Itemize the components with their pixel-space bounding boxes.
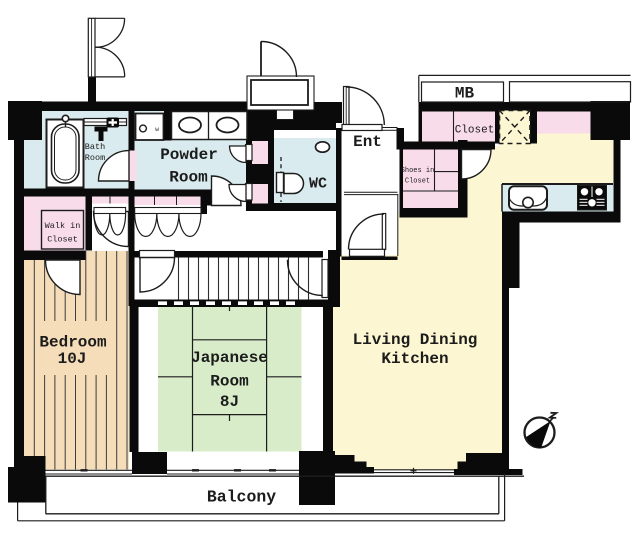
svg-text:Bedroom: Bedroom: [39, 334, 107, 352]
svg-text:Walk in: Walk in: [45, 221, 81, 231]
svg-text:Shoes in: Shoes in: [401, 167, 435, 175]
svg-text:WC: WC: [309, 176, 327, 193]
svg-text:Living Dining: Living Dining: [353, 331, 478, 349]
svg-text:Japanese: Japanese: [191, 349, 268, 367]
svg-text:MB: MB: [455, 85, 475, 103]
svg-text:Closet: Closet: [455, 125, 495, 137]
svg-text:Kitchen: Kitchen: [381, 350, 448, 368]
svg-text:Room: Room: [169, 169, 208, 187]
svg-text:Room: Room: [85, 153, 105, 163]
svg-text:Room: Room: [210, 373, 249, 391]
svg-text:w: w: [155, 126, 159, 133]
svg-text:8J: 8J: [220, 393, 239, 411]
svg-text:Powder: Powder: [160, 146, 218, 164]
svg-text:Ent: Ent: [353, 133, 382, 151]
svg-text:10J: 10J: [58, 350, 87, 368]
svg-text:Closet: Closet: [405, 178, 430, 186]
svg-text:Bath: Bath: [85, 142, 105, 152]
svg-text:Balcony: Balcony: [207, 488, 276, 507]
svg-text:Closet: Closet: [47, 235, 78, 245]
